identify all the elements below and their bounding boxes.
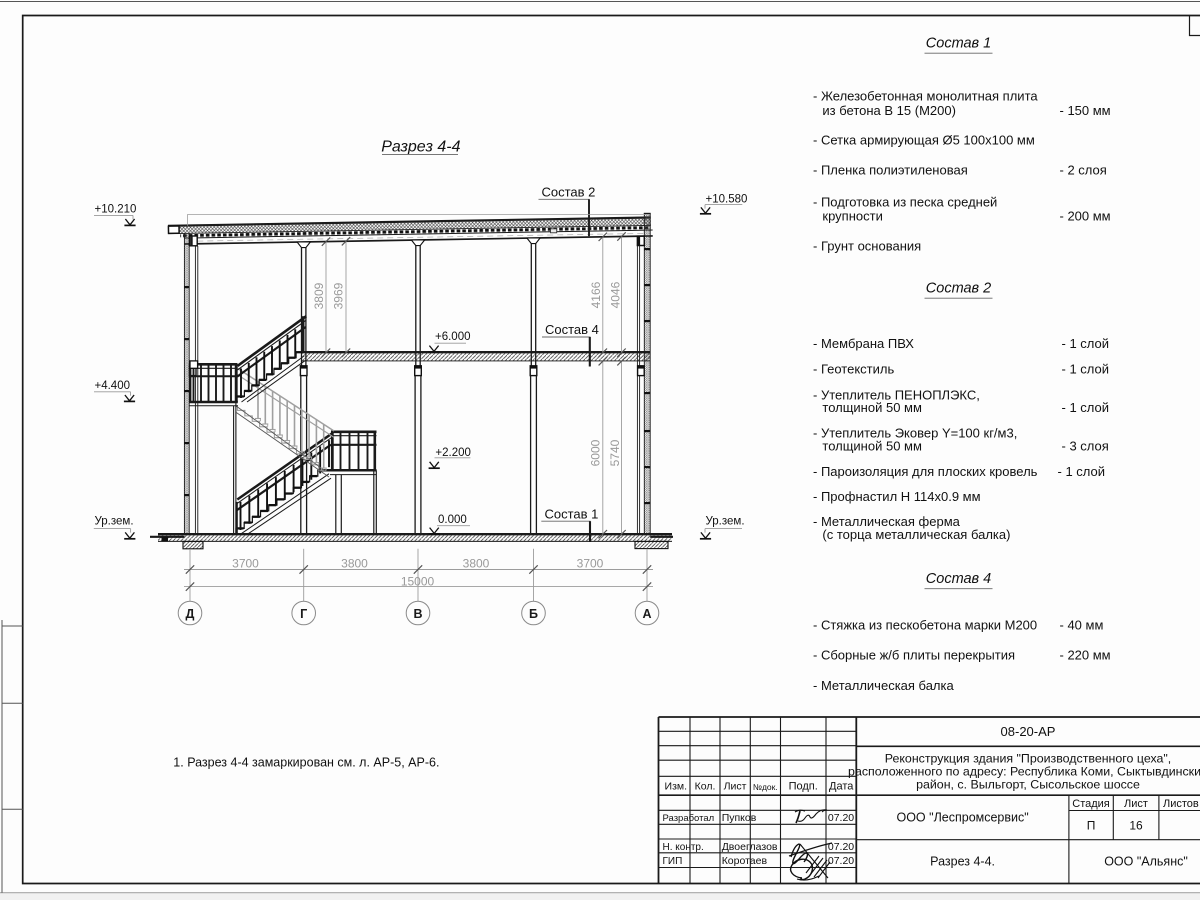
svg-text:- Стяжка из пескобетона марки: - Стяжка из пескобетона марки М200 [813,618,1037,633]
svg-text:0.000: 0.000 [438,514,467,526]
svg-text:- 1 слой: - 1 слой [1058,464,1106,479]
svg-text:- Грунт основания: - Грунт основания [813,238,921,253]
svg-text:3800: 3800 [463,556,490,570]
svg-text:Разрез 4-4.: Разрез 4-4. [930,855,995,869]
svg-text:Состав 2: Состав 2 [542,184,596,199]
svg-text:- 3 слоя: - 3 слоя [1062,439,1109,454]
svg-text:- 40 мм: - 40 мм [1060,618,1104,633]
svg-text:3700: 3700 [577,556,604,570]
svg-text:П: П [1087,819,1096,833]
svg-text:4166: 4166 [589,281,603,308]
svg-text:- 2 слоя: - 2 слоя [1060,163,1107,178]
svg-text:Разработал: Разработал [663,813,715,824]
svg-text:№док.: №док. [753,782,778,792]
svg-text:5740: 5740 [608,439,622,466]
svg-text:- 200 мм: - 200 мм [1060,209,1111,224]
svg-text:толщиной 50 мм: толщиной 50 мм [822,400,922,415]
svg-text:07.20: 07.20 [828,812,854,824]
svg-text:16: 16 [1129,819,1143,833]
svg-text:3800: 3800 [341,556,368,570]
svg-text:- Металлическая балка: - Металлическая балка [813,678,954,693]
svg-text:Состав 1: Состав 1 [926,36,991,52]
svg-text:+10.580: +10.580 [706,193,748,205]
svg-text:Кол.: Кол. [695,780,716,792]
svg-text:- 1 слой: - 1 слой [1062,362,1110,377]
svg-text:Лист: Лист [724,780,747,792]
svg-text:- Подготовка из песка средней: - Подготовка из песка средней [813,194,997,209]
svg-text:6000: 6000 [588,439,602,466]
svg-text:Реконструкция здания "Производ: Реконструкция здания "Производственного … [885,752,1171,766]
svg-text:Двоеглазов: Двоеглазов [722,841,778,853]
svg-text:Б: Б [529,607,538,621]
svg-text:- Пароизоляция для плоских кро: - Пароизоляция для плоских кровель [813,464,1038,479]
svg-text:15000: 15000 [401,575,435,589]
svg-text:07.20: 07.20 [828,855,854,867]
svg-text:расположенного по адресу: Респ: расположенного по адресу: Республика Ком… [848,765,1200,779]
svg-text:+4.400: +4.400 [95,380,131,392]
svg-text:- Профнастил Н 114х0.9 мм: - Профнастил Н 114х0.9 мм [813,489,981,504]
svg-text:Пупков: Пупков [722,812,757,824]
svg-text:толщиной 50 мм: толщиной 50 мм [822,439,922,454]
svg-text:+6.000: +6.000 [435,331,471,343]
svg-text:3969: 3969 [332,282,346,309]
svg-text:Разрез 4-4: Разрез 4-4 [381,139,460,156]
svg-text:Дата: Дата [829,780,854,792]
svg-text:Коротаев: Коротаев [722,855,768,867]
svg-text:Состав 4: Состав 4 [545,322,599,337]
svg-text:- Железобетонная монолитная п: - Железобетонная монолитная плита [813,89,1038,104]
svg-text:ГИП: ГИП [663,856,683,867]
svg-text:Н. контр.: Н. контр. [663,842,704,853]
svg-text:- Сборные ж/б плиты перекрытия: - Сборные ж/б плиты перекрытия [813,648,1015,663]
svg-text:- Мембрана ПВХ: - Мембрана ПВХ [813,336,914,351]
svg-text:Стадия: Стадия [1072,798,1110,810]
svg-text:08-20-АР: 08-20-АР [1001,724,1056,739]
svg-text:Д: Д [186,607,195,621]
svg-text:- Геотекстиль: - Геотекстиль [813,362,894,377]
svg-text:А: А [642,607,651,621]
svg-text:ООО "Леспромсервис": ООО "Леспромсервис" [896,811,1028,825]
svg-text:- Пленка полиэтиленовая: - Пленка полиэтиленовая [813,163,968,178]
svg-text:- Сетка армирующая Ø5 100х100: - Сетка армирующая Ø5 100х100 мм [813,133,1035,148]
svg-text:(с торца металлическая балка): (с торца металлическая балка) [822,527,1010,542]
svg-text:- 1 слой: - 1 слой [1062,336,1110,351]
svg-text:1. Разрез 4-4 замаркирован см.: 1. Разрез 4-4 замаркирован см. л. АР-5, … [173,756,439,770]
svg-text:3700: 3700 [232,556,259,570]
svg-text:ООО "Альянс": ООО "Альянс" [1104,855,1188,869]
svg-text:Состав 2: Состав 2 [926,281,991,297]
svg-text:+2.200: +2.200 [435,447,471,459]
svg-text:- 1 слой: - 1 слой [1062,400,1110,415]
svg-text:Состав 1: Состав 1 [545,506,599,521]
svg-text:Подп.: Подп. [789,780,818,792]
svg-text:В: В [413,607,422,621]
svg-text:3809: 3809 [312,282,326,309]
svg-text:Листов: Листов [1163,798,1199,810]
svg-text:- 150 мм: - 150 мм [1060,103,1111,118]
svg-text:Ур.зем.: Ур.зем. [706,516,745,528]
svg-text:- 220 мм: - 220 мм [1060,648,1111,663]
svg-text:район, с. Выльгорт, Сысольское: район, с. Выльгорт, Сысольское шоссе [916,778,1140,792]
svg-text:Лист: Лист [1124,798,1148,810]
svg-text:Ур.зем.: Ур.зем. [95,516,134,528]
svg-text:Изм.: Изм. [665,780,688,792]
svg-text:+10.210: +10.210 [95,204,137,216]
svg-text:из бетона В 15 (М200): из бетона В 15 (М200) [822,103,956,118]
svg-text:4046: 4046 [608,281,622,308]
svg-text:Г: Г [300,607,307,621]
svg-text:Состав 4: Состав 4 [926,571,991,587]
svg-text:крупности: крупности [822,209,882,224]
